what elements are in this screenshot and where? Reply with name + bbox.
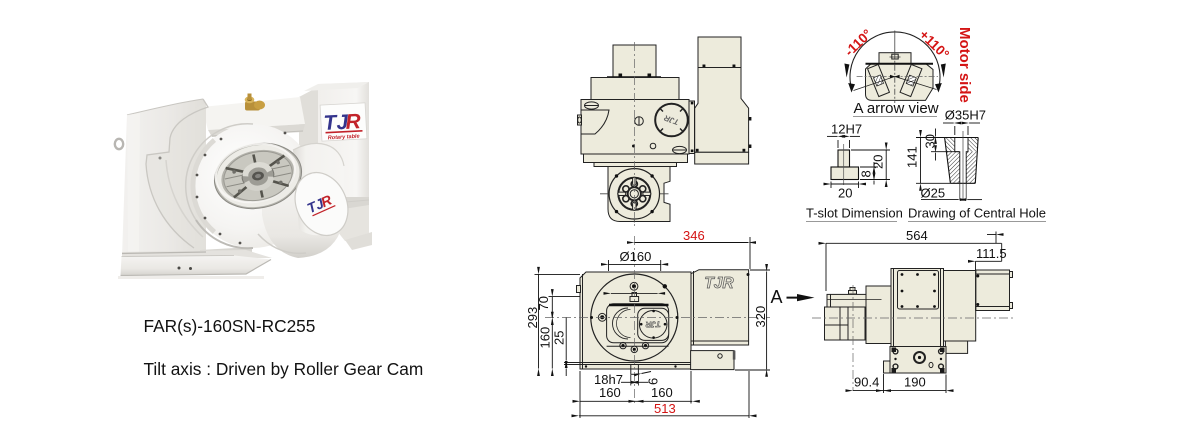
svg-text:141: 141 [905, 146, 920, 168]
svg-text:513: 513 [654, 401, 676, 416]
svg-text:12H7: 12H7 [831, 122, 862, 137]
svg-text:160: 160 [538, 327, 553, 349]
svg-text:6: 6 [646, 378, 661, 385]
svg-text:20: 20 [871, 155, 886, 169]
svg-text:Ø25: Ø25 [921, 186, 946, 201]
svg-text:A: A [771, 287, 783, 307]
svg-text:+110°: +110° [916, 27, 952, 62]
svg-text:Drawing of Central Hole: Drawing of Central Hole [908, 206, 1046, 221]
svg-text:Ø160: Ø160 [620, 249, 652, 264]
svg-text:TJR: TJR [645, 319, 661, 329]
svg-text:-110°: -110° [842, 26, 875, 59]
svg-text:111.5: 111.5 [976, 246, 1007, 261]
svg-text:30: 30 [923, 134, 938, 148]
svg-text:160: 160 [599, 385, 621, 400]
svg-text:Ø35H7: Ø35H7 [945, 108, 986, 123]
svg-text:160: 160 [651, 385, 673, 400]
svg-text:A arrow view: A arrow view [854, 100, 939, 117]
svg-text:FAR(s)-160SN-RC255: FAR(s)-160SN-RC255 [144, 316, 316, 336]
svg-text:Motor side: Motor side [956, 27, 973, 103]
svg-text:70: 70 [536, 296, 551, 310]
svg-text:190: 190 [904, 375, 926, 390]
svg-text:8: 8 [859, 170, 874, 177]
svg-text:20: 20 [838, 186, 852, 201]
svg-text:346: 346 [683, 228, 705, 243]
svg-text:Tilt axis : Driven by Roller G: Tilt axis : Driven by Roller Gear Cam [144, 359, 424, 379]
svg-text:T-slot Dimension: T-slot Dimension [806, 206, 903, 221]
svg-text:320: 320 [753, 306, 768, 328]
svg-text:TJR: TJR [704, 275, 734, 292]
svg-text:564: 564 [906, 228, 928, 243]
svg-text:25: 25 [552, 331, 567, 345]
svg-text:90.4: 90.4 [854, 375, 879, 390]
